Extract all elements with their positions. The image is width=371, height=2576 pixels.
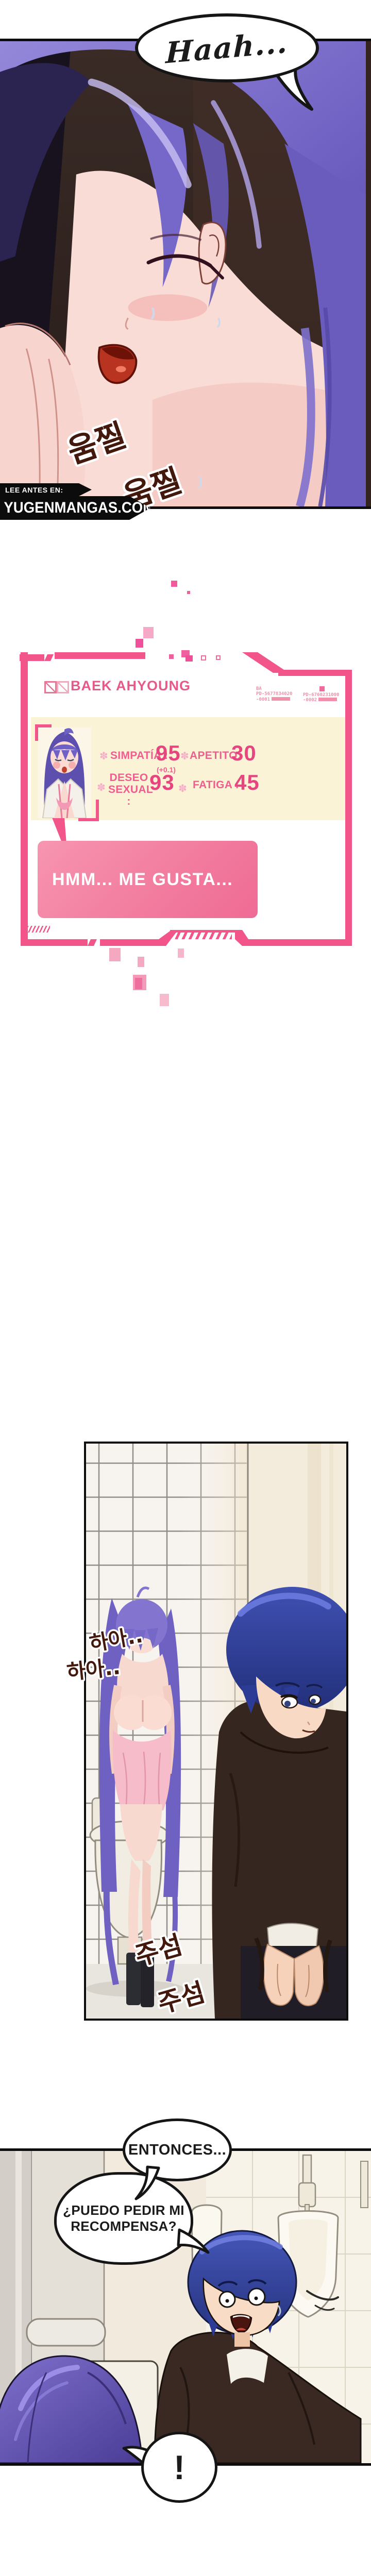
webtoon-page: Haah... 움찔 움찔 LEE ANTES EN: YUGENMANGAS.… (0, 0, 371, 2576)
recompensa-tail (175, 2221, 216, 2257)
character-name: BAEK AHYOUNG (71, 678, 191, 694)
status-speech-text: HMM... ME GUSTA... (38, 870, 233, 890)
hatch-marks (171, 933, 232, 939)
code-bar (318, 698, 337, 701)
panel-bathroom-art (86, 1444, 346, 2019)
flower-bullet: ✽ (97, 781, 106, 793)
flower-bullet: ✽ (178, 782, 187, 794)
pixel-square (109, 948, 121, 961)
stat-value-simpatia: 95 (156, 741, 181, 766)
pixel-square (319, 686, 325, 691)
watermark-lead[interactable]: LEE ANTES EN: (0, 483, 92, 496)
panel-reward (0, 2148, 371, 2466)
speech-text: ! (174, 2448, 185, 2487)
flower-bullet: ✽ (99, 750, 108, 762)
id-code-block-2: PD-6760231000 -0002 (303, 692, 339, 703)
panel-bathroom (84, 1442, 348, 2021)
pixel-square (143, 627, 154, 638)
code-bar (272, 697, 290, 701)
speech-text: ¿PUEDO PEDIR MI RECOMPENSA? (57, 2202, 191, 2234)
watermark-site[interactable]: YUGENMANGAS.COM (0, 496, 150, 520)
stat-value-deseo: 93 (149, 770, 175, 795)
watermark-lead-text: LEE ANTES EN: (5, 486, 63, 494)
speech-bubble-exclaim: ! (141, 2432, 217, 2503)
stat-label-deseo: DESEO SEXUAL : (108, 772, 149, 807)
pixel-square (136, 639, 143, 648)
pixel-square (178, 948, 184, 958)
status-speech-box: HMM... ME GUSTA... (38, 841, 258, 918)
pixel-square (185, 655, 193, 662)
panel-glyph-icon (44, 681, 57, 693)
pixel-square (160, 994, 169, 1006)
panel-glyph-icon (57, 681, 69, 693)
speech-bubble-recompensa: ¿PUEDO PEDIR MI RECOMPENSA? (54, 2172, 193, 2265)
stat-value-fatiga: 45 (234, 770, 260, 795)
pixel-square (171, 581, 177, 587)
watermark-site-text: YUGENMANGAS.COM (0, 499, 155, 517)
pixel-square-outline (216, 655, 221, 660)
stat-value-apetito: 30 (231, 741, 257, 766)
pixel-square (135, 978, 142, 989)
flower-bullet: ✽ (180, 750, 189, 762)
stat-label-fatiga: FATIGA : (193, 779, 239, 791)
portrait-bracket-br (78, 800, 99, 821)
pixel-square (187, 591, 190, 594)
id-code-block-1: BA PD-5677834020 -0001 (256, 686, 292, 702)
speech-text: ENTONCES... (128, 2142, 226, 2159)
pixel-square-outline (201, 655, 206, 660)
hatch-marks (27, 926, 50, 933)
entonces-tail (129, 2164, 165, 2205)
pixel-square (169, 654, 174, 659)
speech-text: Haah... (165, 25, 289, 70)
portrait-bracket-tl (35, 724, 52, 741)
speech-bubble-haah: Haah... (135, 13, 319, 82)
pixel-square (138, 957, 144, 967)
